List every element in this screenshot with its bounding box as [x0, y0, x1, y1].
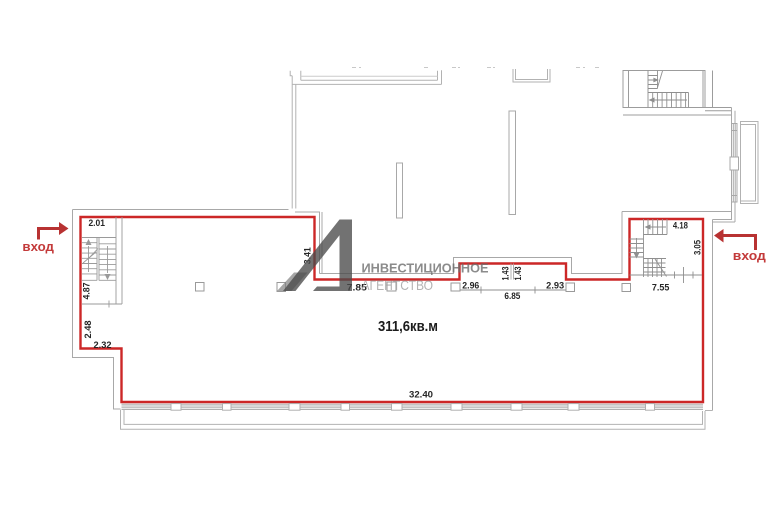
svg-text:2.48: 2.48	[83, 321, 93, 339]
svg-text:4.18: 4.18	[673, 221, 688, 231]
svg-text:2.93: 2.93	[546, 281, 564, 291]
svg-text:3.05: 3.05	[693, 240, 703, 255]
svg-text:АГЕНТСТВО: АГЕНТСТВО	[362, 277, 434, 293]
svg-text:2.01: 2.01	[88, 218, 105, 228]
svg-text:32.40: 32.40	[409, 390, 433, 400]
svg-text:1.43: 1.43	[513, 267, 523, 281]
svg-text:6.85: 6.85	[504, 291, 520, 301]
svg-text:ИНВЕСТИЦИОННОЕ: ИНВЕСТИЦИОННОЕ	[362, 262, 489, 276]
svg-text:вход: вход	[22, 239, 54, 254]
svg-text:2.96: 2.96	[462, 281, 479, 291]
svg-text:311,6кв.м: 311,6кв.м	[378, 318, 438, 335]
svg-text:вход: вход	[733, 248, 767, 263]
svg-text:2.32: 2.32	[94, 340, 112, 350]
svg-text:7.55: 7.55	[652, 283, 670, 293]
svg-text:4.87: 4.87	[82, 283, 92, 300]
svg-text:1.43: 1.43	[501, 267, 511, 281]
